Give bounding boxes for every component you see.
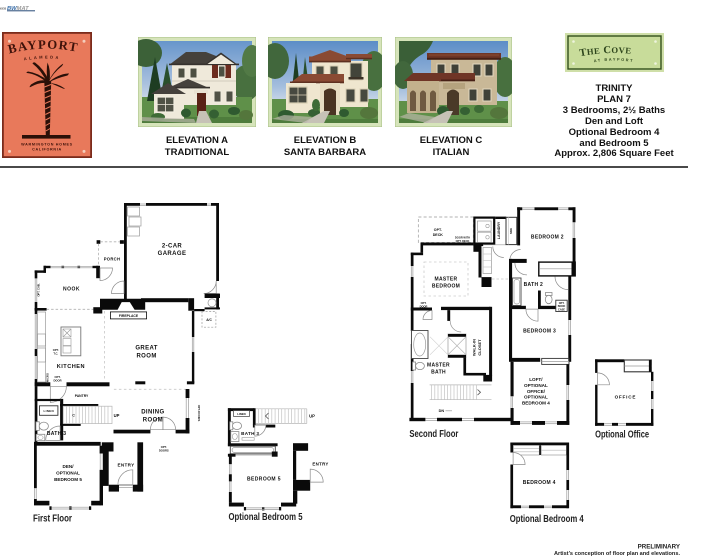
svg-text:LAUNDRY: LAUNDRY <box>497 221 501 239</box>
svg-text:ROOM: ROOM <box>143 417 163 423</box>
svg-text:BEDROOM 4: BEDROOM 4 <box>523 480 556 486</box>
svg-text:BEDROOM 5: BEDROOM 5 <box>247 477 281 483</box>
svg-text:OPTIONAL: OPTIONAL <box>56 471 80 476</box>
svg-text:BEDROOM 2: BEDROOM 2 <box>531 234 564 240</box>
svg-text:BATH: BATH <box>431 369 446 375</box>
svg-text:DOOR: DOOR <box>420 304 428 308</box>
svg-text:WALK-IN: WALK-IN <box>472 339 477 356</box>
svg-text:OFFICE/: OFFICE/ <box>527 389 546 394</box>
svg-text:NOOK: NOOK <box>63 286 80 292</box>
svg-text:OPTIONAL: OPTIONAL <box>524 395 548 400</box>
svg-text:PORCH: PORCH <box>104 256 121 261</box>
svg-text:GREAT: GREAT <box>135 346 158 352</box>
svg-text:KITCHEN: KITCHEN <box>57 364 85 370</box>
svg-text:BEDROOM 5: BEDROOM 5 <box>54 477 82 482</box>
svg-text:OPT. DOORS: OPT. DOORS <box>197 405 201 422</box>
svg-text:Artist’s conception of floor p: Artist’s conception of floor plan and el… <box>554 551 680 556</box>
svg-text:SINK: SINK <box>509 228 513 234</box>
svg-text:ENTRY: ENTRY <box>118 462 135 467</box>
svg-text:LOFT/: LOFT/ <box>529 377 543 382</box>
svg-text:Optional Office: Optional Office <box>595 430 649 441</box>
svg-text:FIREPLACE: FIREPLACE <box>119 314 139 318</box>
svg-text:BATH 3: BATH 3 <box>47 431 67 437</box>
svg-text:OPTIONAL: OPTIONAL <box>524 383 548 388</box>
svg-text:PRELIMINARY: PRELIMINARY <box>638 543 681 550</box>
svg-text:OPT.: OPT. <box>434 228 442 232</box>
svg-text:BATH 3: BATH 3 <box>241 431 259 436</box>
svg-text:DEN/: DEN/ <box>63 464 75 469</box>
svg-text:C: C <box>72 414 75 418</box>
svg-text:OPT. DECK: OPT. DECK <box>456 239 470 243</box>
svg-text:BEDROOM 3: BEDROOM 3 <box>523 328 556 334</box>
svg-text:ROOM: ROOM <box>136 354 156 360</box>
svg-text:BATH 2: BATH 2 <box>524 282 544 288</box>
svg-text:2-CAR: 2-CAR <box>162 244 183 250</box>
svg-text:LINEN: LINEN <box>237 412 245 416</box>
svg-text:CASE: CASE <box>558 308 565 311</box>
svg-text:BEDROOM: BEDROOM <box>432 284 460 290</box>
svg-text:First Floor: First Floor <box>33 514 72 525</box>
svg-text:PANTRY: PANTRY <box>75 394 89 398</box>
svg-text:GARAGE: GARAGE <box>158 251 187 257</box>
svg-text:OPT.: OPT. <box>161 445 167 449</box>
svg-text:DOORS: DOORS <box>159 449 169 453</box>
svg-text:MICRO: MICRO <box>45 373 49 382</box>
svg-text:DECK: DECK <box>433 233 444 237</box>
svg-text:BEDROOM 4: BEDROOM 4 <box>522 400 550 405</box>
svg-text:A/C: A/C <box>206 318 212 322</box>
svg-text:Optional Bedroom 4: Optional Bedroom 4 <box>510 514 584 525</box>
svg-text:OFFICE: OFFICE <box>615 395 637 400</box>
svg-text:ENTRY: ENTRY <box>312 462 328 467</box>
svg-text:OPT.: OPT. <box>53 348 59 352</box>
svg-text:OPT.: OPT. <box>55 375 61 379</box>
svg-text:Second Floor: Second Floor <box>409 429 458 440</box>
svg-text:MASTER: MASTER <box>435 277 458 283</box>
svg-text:OPT. CAB.: OPT. CAB. <box>37 283 41 297</box>
svg-text:CLOSET: CLOSET <box>477 339 482 356</box>
svg-text:MASTER: MASTER <box>427 363 450 369</box>
svg-text:T.C.: T.C. <box>53 351 58 355</box>
svg-text:Optional Bedroom 5: Optional Bedroom 5 <box>229 512 303 523</box>
svg-text:UP: UP <box>114 413 120 418</box>
svg-text:DOOR: DOOR <box>53 378 61 382</box>
svg-text:LINEN: LINEN <box>43 409 54 413</box>
svg-text:DINING: DINING <box>141 409 164 415</box>
svg-text:DN: DN <box>439 409 445 413</box>
svg-text:UP: UP <box>309 413 315 418</box>
